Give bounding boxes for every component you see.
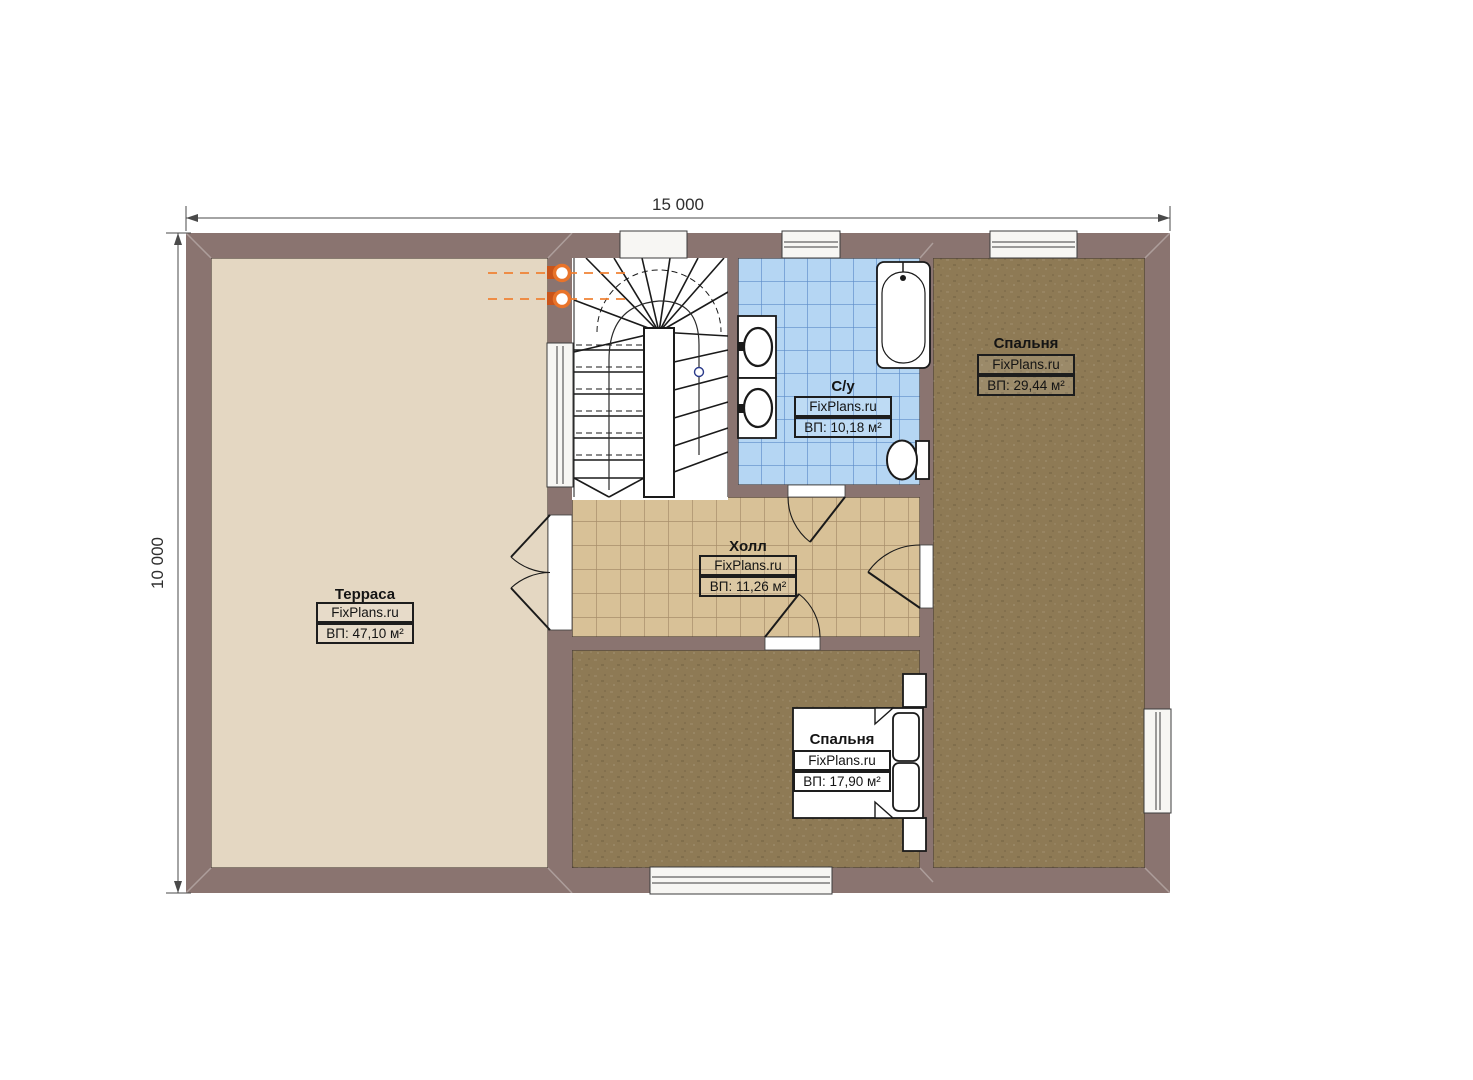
wall-stair-bath-divider bbox=[728, 258, 738, 497]
room-name: С/у bbox=[831, 378, 855, 395]
area-label: ВП: 29,44 м² bbox=[987, 378, 1065, 393]
brand-label: FixPlans.ru bbox=[992, 357, 1060, 372]
lamp-icon bbox=[555, 292, 570, 307]
faucet-icon bbox=[738, 404, 745, 413]
sink-vanity-top bbox=[738, 316, 776, 378]
brand-label: FixPlans.ru bbox=[714, 558, 782, 573]
wall-hall-bottom bbox=[572, 637, 933, 650]
area-label: ВП: 10,18 м² bbox=[804, 420, 882, 435]
window-right-bedroom bbox=[1144, 709, 1171, 813]
area-label: ВП: 11,26 м² bbox=[710, 579, 787, 594]
nightstand-bottom bbox=[903, 818, 926, 851]
bathtub bbox=[877, 262, 930, 368]
room-name: Спальня bbox=[810, 731, 875, 748]
brand-label: FixPlans.ru bbox=[331, 605, 399, 620]
window-top-bedroom-right bbox=[990, 231, 1077, 258]
floor-plan-canvas: 15 000 10 000 Терраса FixPlans.ru ВП: 47… bbox=[0, 0, 1473, 1080]
terrace-floor bbox=[211, 258, 548, 868]
area-label: ВП: 47,10 м² bbox=[326, 626, 404, 641]
lamp-icon bbox=[555, 266, 570, 281]
window-bottom-bedroom bbox=[650, 867, 832, 894]
stair-newel bbox=[644, 328, 674, 497]
area-label: ВП: 17,90 м² bbox=[803, 774, 881, 789]
brand-label: FixPlans.ru bbox=[809, 399, 877, 414]
faucet-icon bbox=[738, 342, 745, 351]
brand-label: FixPlans.ru bbox=[808, 753, 876, 768]
dimension-width-label: 15 000 bbox=[652, 195, 704, 214]
dimension-top: 15 000 bbox=[186, 195, 1170, 231]
sink-vanity-bottom bbox=[738, 378, 776, 438]
wall-left bbox=[186, 233, 211, 893]
pillow-top bbox=[893, 713, 919, 761]
toilet bbox=[887, 441, 929, 480]
floor-plan-page: 15 000 10 000 Терраса FixPlans.ru ВП: 47… bbox=[0, 0, 1473, 1080]
pillow-bottom bbox=[893, 763, 919, 811]
window-terrace-stairwell bbox=[547, 343, 573, 487]
room-name: Спальня bbox=[994, 335, 1059, 352]
window-top-bathroom bbox=[782, 231, 840, 258]
room-name: Холл bbox=[729, 538, 767, 555]
nightstand-top bbox=[903, 674, 926, 707]
window-top-stairs bbox=[620, 231, 687, 258]
dimension-left: 10 000 bbox=[148, 233, 191, 893]
room-name: Терраса bbox=[335, 586, 396, 603]
dimension-height-label: 10 000 bbox=[148, 537, 167, 589]
